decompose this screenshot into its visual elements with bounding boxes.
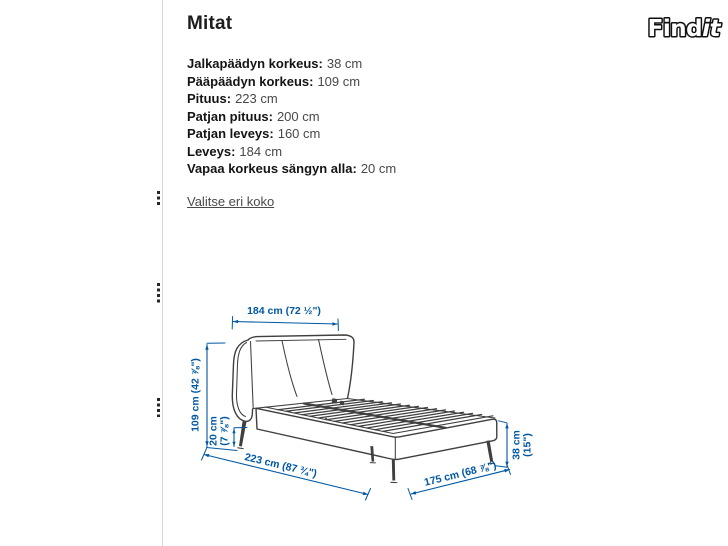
dimensions-panel: Mitat Jalkapäädyn korkeus:38 cm Pääpäädy…	[187, 13, 547, 211]
rail-screw-dot	[361, 425, 363, 427]
front-corner-leg	[392, 459, 395, 480]
clipped-text-fragment	[157, 191, 160, 207]
clipped-text-fragment	[157, 398, 160, 417]
center-rail-bracket	[332, 398, 338, 403]
dim-label-clearance-line2: (7 ⅞")	[219, 416, 231, 446]
headboard-wing-outer	[232, 340, 252, 421]
headboard-leg	[239, 422, 247, 447]
dim-tick	[496, 421, 507, 467]
headboard-top-right-edge	[248, 335, 354, 399]
dim-label-foot-height-line2: (15")	[522, 433, 534, 457]
dim-line-width-top	[233, 322, 338, 325]
far-corner-leg	[486, 440, 493, 462]
headboard-leg-foot	[238, 448, 243, 449]
panel-left-border	[162, 0, 163, 546]
spec-row-headboard-height: Pääpäädyn korkeus:109 cm	[187, 73, 547, 91]
dim-label-width-top: 184 cm (72 ½")	[247, 305, 321, 317]
spec-list: Jalkapäädyn korkeus:38 cm Pääpäädyn kork…	[187, 55, 547, 178]
headboard-face-left-edge	[251, 342, 254, 409]
findit-logo-text: Findit	[648, 16, 722, 42]
headboard-seam-1	[282, 341, 297, 397]
spec-row-footboard-height: Jalkapäädyn korkeus:38 cm	[187, 55, 547, 73]
page-background: Findit Mitat Jalkapäädyn korkeus:38 cm P…	[0, 0, 728, 546]
findit-logo: Findit	[646, 8, 726, 48]
choose-size-link[interactable]: Valitse eri koko	[187, 194, 274, 209]
rail-screw-dot	[325, 418, 327, 420]
spec-row-clearance: Vapaa korkeus sängyn alla:20 cm	[187, 160, 547, 178]
headboard-seam-2	[319, 339, 333, 394]
spec-row-mattress-width: Patjan leveys:160 cm	[187, 125, 547, 143]
clipped-text-fragment	[157, 283, 160, 304]
spec-row-length: Pituus:223 cm	[187, 90, 547, 108]
dim-label-length: 223 cm (87 ¾")	[243, 451, 318, 480]
spec-row-mattress-length: Patjan pituus:200 cm	[187, 108, 547, 126]
dimension-labels: 184 cm (72 ½") 109 cm (42 ⅞") 20 cm (7 ⅞…	[190, 305, 534, 489]
bed-dimension-diagram: 184 cm (72 ½") 109 cm (42 ⅞") 20 cm (7 ⅞…	[180, 290, 540, 512]
center-rail-bracket	[340, 401, 345, 406]
dim-label-height-left: 109 cm (42 ⅞")	[190, 358, 202, 432]
spec-row-width: Leveys:184 cm	[187, 143, 547, 161]
dim-label-width-bottom: 175 cm (68 ⅞")	[423, 459, 498, 489]
headboard-top-inner-line	[256, 339, 346, 341]
page-title: Mitat	[187, 13, 547, 35]
rail-screw-dot	[289, 410, 291, 412]
headboard-wing-inner	[236, 343, 246, 417]
